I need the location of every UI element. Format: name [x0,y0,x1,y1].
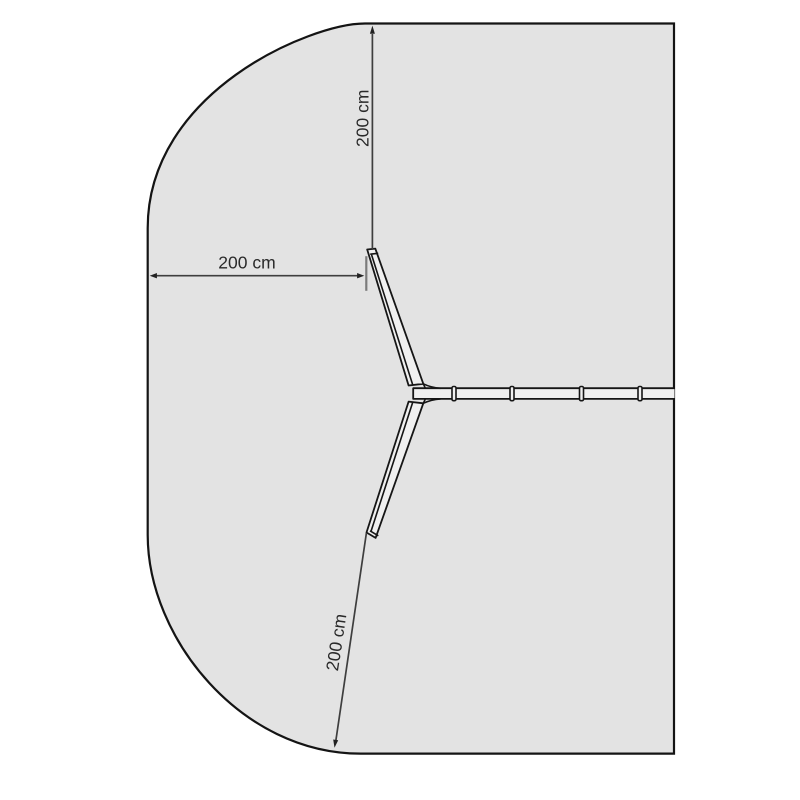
svg-text:200 cm: 200 cm [352,90,372,147]
svg-text:200 cm: 200 cm [218,253,275,273]
